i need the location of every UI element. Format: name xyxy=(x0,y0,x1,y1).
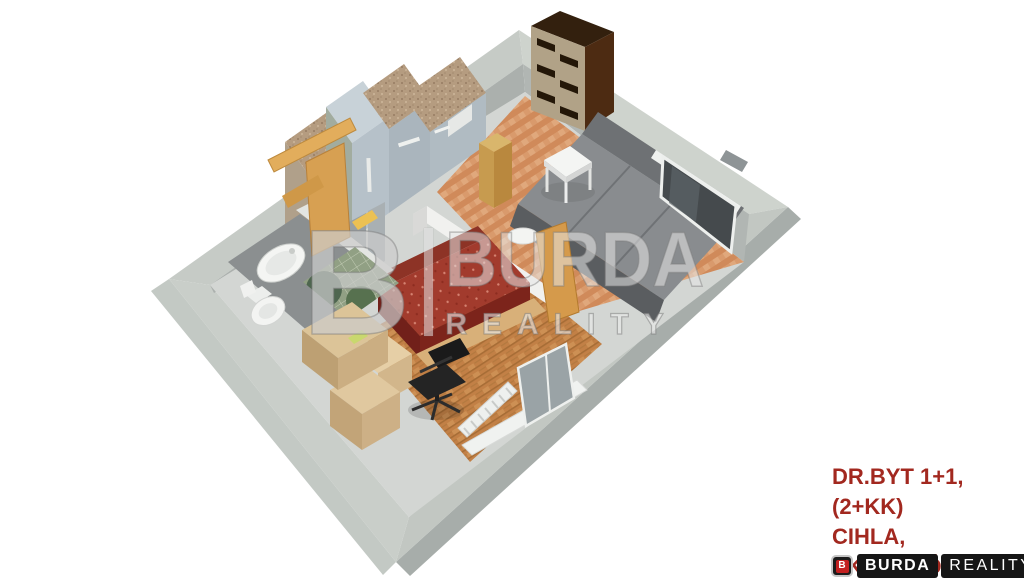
tan-cabinet-front xyxy=(479,143,494,208)
door-leaf-standing xyxy=(306,143,350,256)
logo-b-letter: B xyxy=(836,560,849,573)
round-table xyxy=(508,228,538,244)
logo-word-burda: BURDA xyxy=(857,554,938,578)
faucet xyxy=(289,248,295,254)
logo-b-icon: B xyxy=(831,555,853,577)
caption-line-type: DR.BYT 1+1, (2+KK) xyxy=(832,462,1024,522)
screenshot-root: B BURDA REALITY DR.BYT 1+1, (2+KK) CIHLA… xyxy=(0,0,1024,579)
tan-cabinet-side xyxy=(494,142,512,208)
table-shadow xyxy=(541,182,595,202)
tan-cabinet xyxy=(479,133,512,208)
logo-word-reality: REALITY xyxy=(941,554,1024,578)
burda-reality-logo: B BURDA REALITY xyxy=(831,554,1024,578)
tall-dark-wardrobe xyxy=(531,11,614,131)
